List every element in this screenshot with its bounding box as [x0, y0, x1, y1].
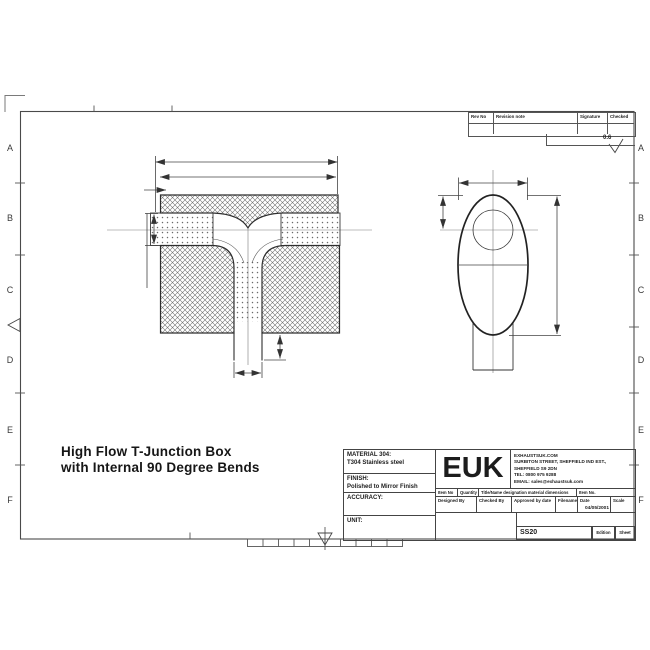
zone-letter-right-a: A: [635, 143, 647, 153]
unit-label: UNIT:: [347, 518, 435, 526]
drawing-title-line1: High Flow T-Junction Box: [61, 444, 260, 460]
revision-empty-cell: [608, 124, 634, 134]
left-body-crosshatch: [161, 246, 235, 334]
filename-cell: Filename: [556, 497, 578, 513]
date-label: Date: [580, 498, 590, 503]
date-cell: Date 04/05/2001: [578, 497, 611, 513]
right-inlet-stipple: [281, 213, 340, 246]
quantity-header: Quantity: [458, 489, 479, 497]
approved-by-cell: Approved by date: [512, 497, 556, 513]
outlet-stipple: [235, 262, 261, 322]
surface-finish-value: 0.6: [603, 135, 611, 141]
zone-letter-left-a: A: [4, 143, 16, 153]
revision-col-signature: Signature: [578, 113, 608, 124]
material-cell: MATERIAL 304: T304 Stainless steel: [344, 450, 436, 474]
zone-letter-right-d: D: [635, 355, 647, 365]
finish-cell: FINISH: Polished to Mirror Finish: [344, 474, 436, 493]
zone-letter-right-b: B: [635, 213, 647, 223]
left-inlet-stipple: [151, 213, 214, 246]
zone-letter-left-b: B: [4, 213, 16, 223]
item-no2-header: Item No.: [577, 489, 635, 497]
material-label: MATERIAL 304:: [347, 452, 435, 460]
company-address: EXHAUSTSUK.COM SURBITON STREET, SHEFFIEL…: [511, 450, 635, 489]
drawing-title-line2: with Internal 90 Degree Bends: [61, 460, 260, 476]
engineering-drawing-canvas: [0, 0, 650, 650]
title-name-header: Title/Name designation material dimensio…: [479, 489, 577, 497]
zone-letter-left-f: F: [4, 495, 16, 505]
scale-cell: Scale: [611, 497, 635, 513]
end-view: [440, 170, 538, 373]
trim-mark-top-left: [5, 96, 25, 113]
revision-empty-cell: [578, 124, 608, 134]
unit-cell: UNIT:: [344, 516, 436, 540]
revision-col-checked: Checked: [608, 113, 634, 124]
finish-label: FINISH:: [347, 476, 435, 484]
company-logo: EUK: [436, 450, 511, 489]
drawing-number-cell: SS20: [516, 526, 592, 540]
right-body-crosshatch: [262, 246, 340, 334]
left-centering-mark: [8, 319, 20, 332]
revision-col-rev-no: Rev No: [469, 113, 494, 124]
sheet-cell: Sheet: [615, 526, 635, 540]
revision-col-note: Revision note: [494, 113, 578, 124]
company-email: EMAIL: sales@exhaustsuk.com: [514, 479, 635, 485]
surface-finish-box: 0.6: [546, 134, 635, 146]
drawing-title: High Flow T-Junction Box with Internal 9…: [61, 444, 260, 476]
accuracy-label: ACCURACY:: [347, 495, 435, 503]
material-value: T304 Stainless steel: [347, 460, 435, 468]
zone-letter-left-c: C: [4, 285, 16, 295]
accuracy-cell: ACCURACY:: [344, 493, 436, 516]
title-block: MATERIAL 304: T304 Stainless steel FINIS…: [343, 449, 636, 541]
item-no-header: Item No: [436, 489, 458, 497]
designed-by-cell: Designed By: [436, 497, 477, 513]
date-value: 04/05/2001: [585, 506, 609, 511]
finish-value: Polished to Mirror Finish: [347, 484, 435, 492]
zone-letter-right-c: C: [635, 285, 647, 295]
zone-letter-left-e: E: [4, 425, 16, 435]
zone-letter-left-d: D: [4, 355, 16, 365]
edition-cell: Edition: [592, 526, 615, 540]
revision-empty-cell: [494, 124, 578, 134]
zone-letter-right-f: F: [635, 495, 647, 505]
revision-empty-cell: [469, 124, 494, 134]
zone-letter-right-e: E: [635, 425, 647, 435]
drawing-sheet: A B C D E F A B C D E F Rev No Revision …: [0, 0, 650, 650]
checked-by-cell: Checked By: [477, 497, 512, 513]
